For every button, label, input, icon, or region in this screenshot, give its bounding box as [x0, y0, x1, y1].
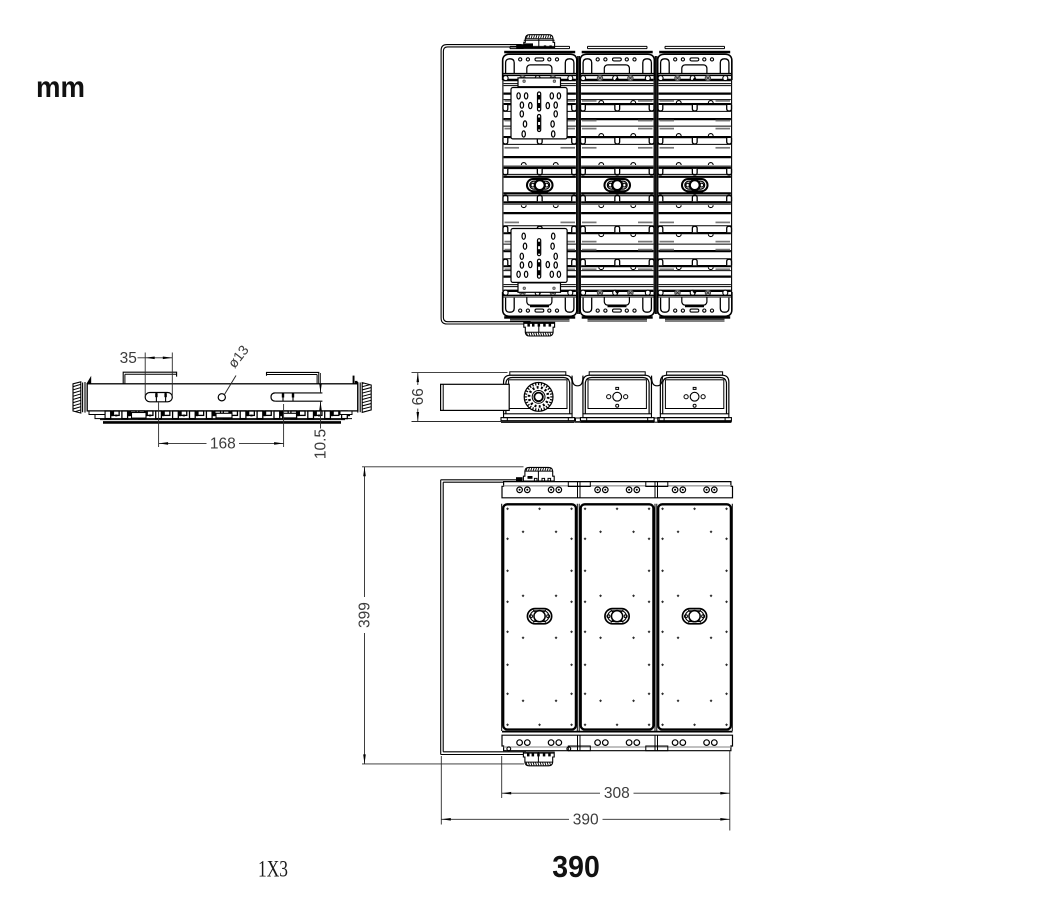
svg-text:35: 35 [120, 350, 137, 367]
svg-text:390: 390 [573, 811, 599, 828]
svg-text:390: 390 [552, 850, 600, 884]
svg-text:308: 308 [604, 785, 630, 802]
svg-text:10.5: 10.5 [313, 429, 330, 459]
svg-text:1X3: 1X3 [258, 857, 288, 882]
svg-text:399: 399 [357, 602, 374, 628]
svg-text:168: 168 [210, 435, 236, 452]
svg-text:66: 66 [410, 388, 427, 405]
svg-text:mm: mm [36, 71, 85, 104]
